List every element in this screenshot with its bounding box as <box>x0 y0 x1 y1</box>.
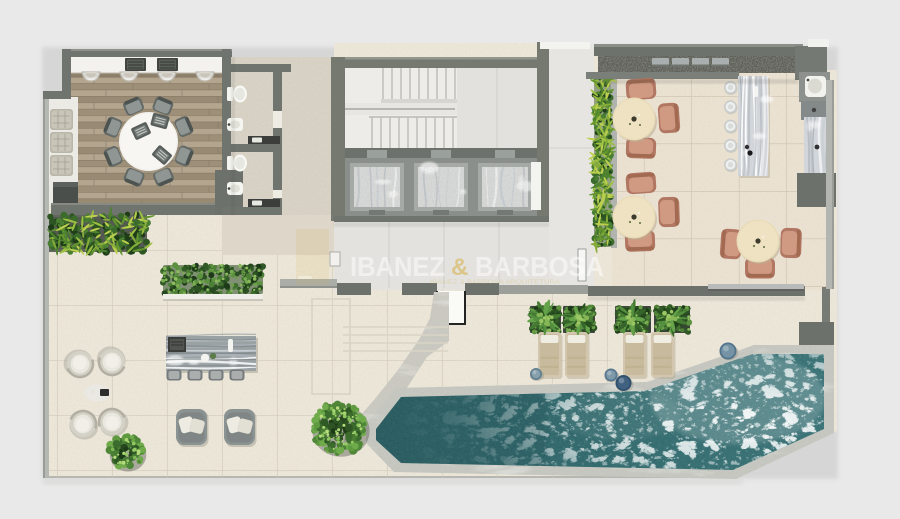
svg-text:IBANEZ: IBANEZ <box>350 251 445 282</box>
svg-text:IBANEZ & BARBOSA ARQUITETURA: IBANEZ & BARBOSA ARQUITETURA <box>430 279 561 286</box>
svg-text:&: & <box>451 254 468 281</box>
svg-text:BARBOSA: BARBOSA <box>475 251 604 282</box>
